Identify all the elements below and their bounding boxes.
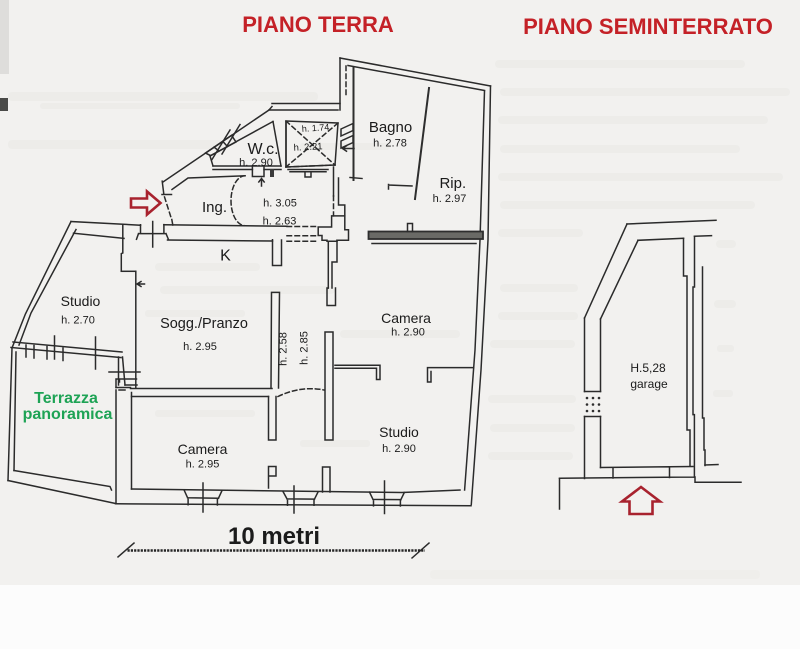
svg-text:h. 3.05: h. 3.05 (263, 198, 297, 210)
svg-text:h. 2.97: h. 2.97 (433, 193, 467, 205)
svg-text:panoramica: panoramica (23, 406, 113, 423)
svg-text:PIANO SEMINTERRATO: PIANO SEMINTERRATO (523, 14, 773, 39)
svg-text:Studio: Studio (379, 424, 419, 440)
svg-text:h. 2.58: h. 2.58 (278, 332, 290, 366)
svg-text:Camera: Camera (178, 441, 228, 457)
svg-text:Bagno: Bagno (369, 119, 412, 136)
svg-text:h. 2.95: h. 2.95 (183, 341, 217, 353)
svg-text:W.c.: W.c. (247, 141, 278, 158)
svg-text:h. 2.63: h. 2.63 (263, 216, 297, 228)
svg-text:garage: garage (630, 377, 668, 391)
svg-text:h. 2.70: h. 2.70 (61, 315, 95, 327)
svg-text:Studio: Studio (61, 293, 101, 309)
svg-text:10 metri: 10 metri (228, 523, 320, 550)
svg-text:H.5,28: H.5,28 (630, 361, 666, 375)
svg-text:h. 1.74: h. 1.74 (301, 122, 329, 134)
svg-text:h. 2.85: h. 2.85 (298, 331, 310, 365)
svg-text:Terrazza: Terrazza (34, 390, 98, 407)
svg-text:Camera: Camera (381, 310, 431, 326)
svg-text:h. 2.95: h. 2.95 (186, 459, 220, 471)
svg-text:K: K (220, 248, 231, 265)
svg-text:h. 2.90: h. 2.90 (382, 443, 416, 455)
svg-text:Ing.: Ing. (202, 199, 227, 216)
svg-text:h. 2.90: h. 2.90 (239, 157, 273, 169)
svg-text:h. 2.90: h. 2.90 (391, 327, 425, 339)
svg-text:h. 2.78: h. 2.78 (373, 138, 407, 150)
svg-text:Sogg./Pranzo: Sogg./Pranzo (160, 316, 248, 332)
svg-text:PIANO TERRA: PIANO TERRA (242, 12, 394, 37)
svg-text:h. 2.21: h. 2.21 (293, 141, 323, 154)
svg-text:Rip.: Rip. (439, 175, 466, 192)
